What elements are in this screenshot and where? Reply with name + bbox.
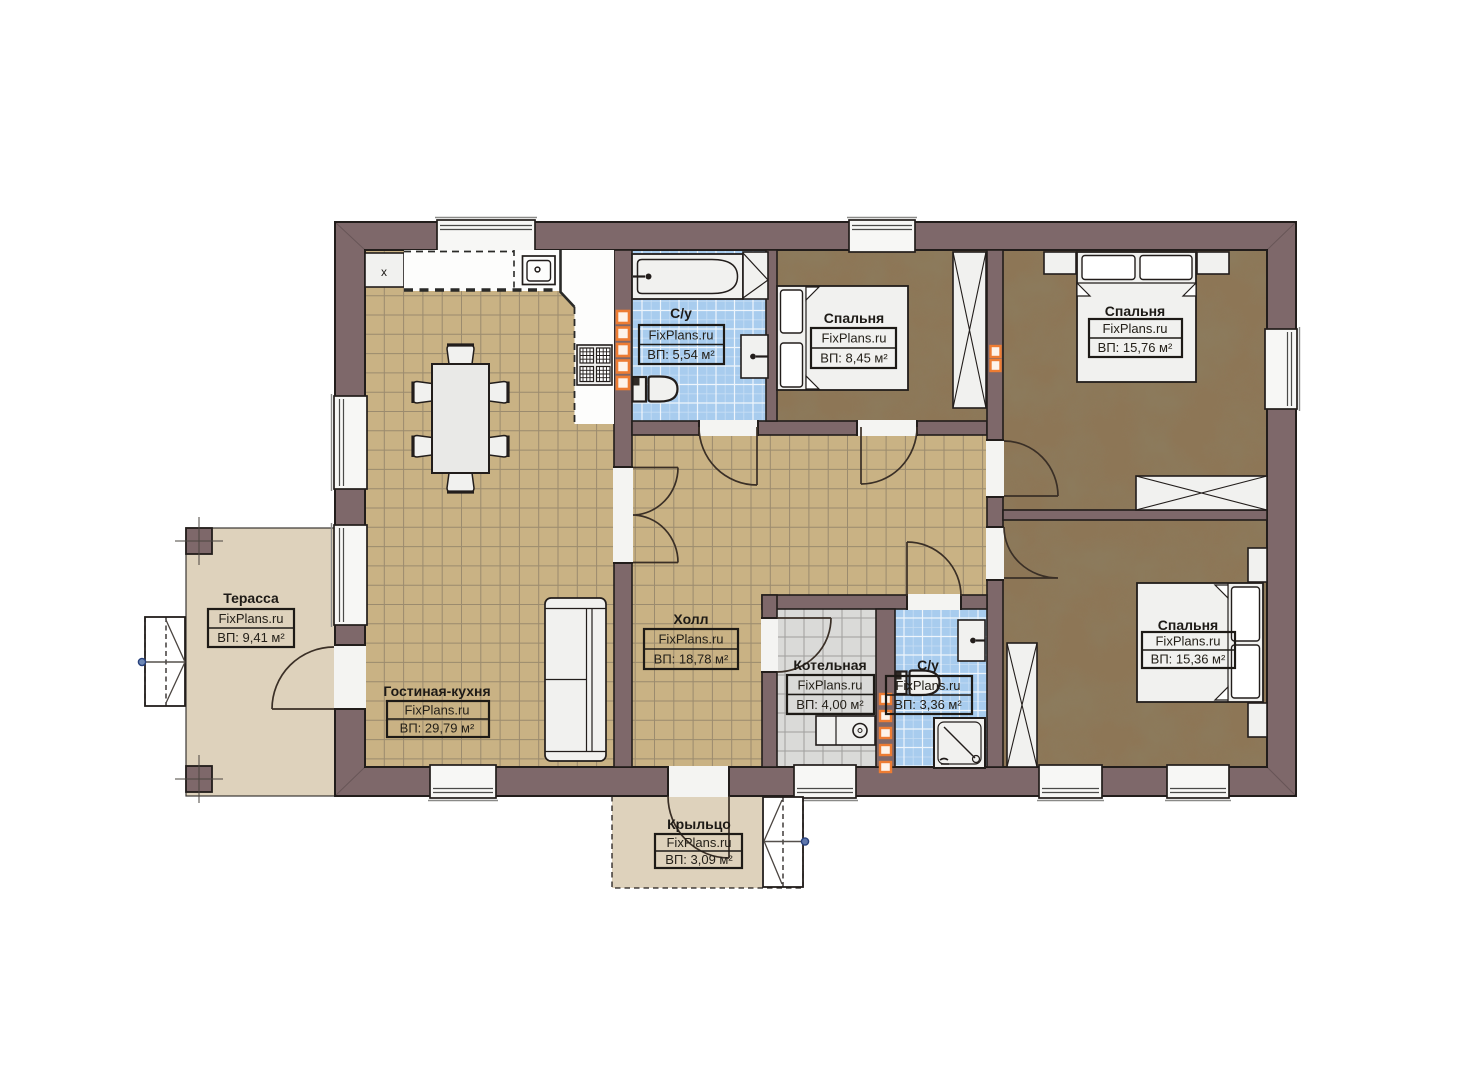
svg-text:С/у: С/у — [917, 657, 939, 673]
svg-text:ВП: 8,45 м²: ВП: 8,45 м² — [820, 351, 888, 366]
svg-text:FixPlans.ru: FixPlans.ru — [648, 327, 713, 342]
svg-text:ВП: 15,36 м²: ВП: 15,36 м² — [1151, 652, 1226, 667]
svg-text:Холл: Холл — [673, 611, 708, 627]
svg-text:С/у: С/у — [670, 305, 692, 321]
svg-text:FixPlans.ru: FixPlans.ru — [1102, 321, 1167, 336]
svg-text:FixPlans.ru: FixPlans.ru — [218, 611, 283, 626]
svg-text:Гостиная-кухня: Гостиная-кухня — [383, 683, 490, 699]
svg-text:Котельная: Котельная — [793, 657, 866, 673]
svg-text:Спальня: Спальня — [1105, 303, 1165, 319]
svg-text:ВП: 29,79 м²: ВП: 29,79 м² — [400, 721, 475, 736]
svg-text:FixPlans.ru: FixPlans.ru — [666, 835, 731, 850]
svg-text:ВП: 3,36 м²: ВП: 3,36 м² — [894, 697, 962, 712]
svg-text:Спальня: Спальня — [824, 310, 884, 326]
svg-text:Спальня: Спальня — [1158, 617, 1218, 633]
svg-text:ВП: 3,09 м²: ВП: 3,09 м² — [665, 852, 733, 867]
svg-text:ВП: 4,00 м²: ВП: 4,00 м² — [796, 697, 864, 712]
svg-text:ВП: 18,78 м²: ВП: 18,78 м² — [654, 652, 729, 667]
svg-text:FixPlans.ru: FixPlans.ru — [895, 678, 960, 693]
svg-text:x: x — [381, 265, 387, 279]
svg-text:ВП: 15,76 м²: ВП: 15,76 м² — [1098, 340, 1173, 355]
svg-text:FixPlans.ru: FixPlans.ru — [404, 703, 469, 718]
svg-text:Терасса: Терасса — [223, 590, 279, 606]
svg-text:FixPlans.ru: FixPlans.ru — [797, 677, 862, 692]
svg-text:FixPlans.ru: FixPlans.ru — [821, 331, 886, 346]
svg-text:FixPlans.ru: FixPlans.ru — [1155, 634, 1220, 649]
svg-text:Крыльцо: Крыльцо — [667, 816, 731, 832]
svg-text:ВП: 9,41 м²: ВП: 9,41 м² — [217, 630, 285, 645]
svg-text:FixPlans.ru: FixPlans.ru — [658, 632, 723, 647]
svg-text:ВП: 5,54 м²: ВП: 5,54 м² — [647, 347, 715, 362]
